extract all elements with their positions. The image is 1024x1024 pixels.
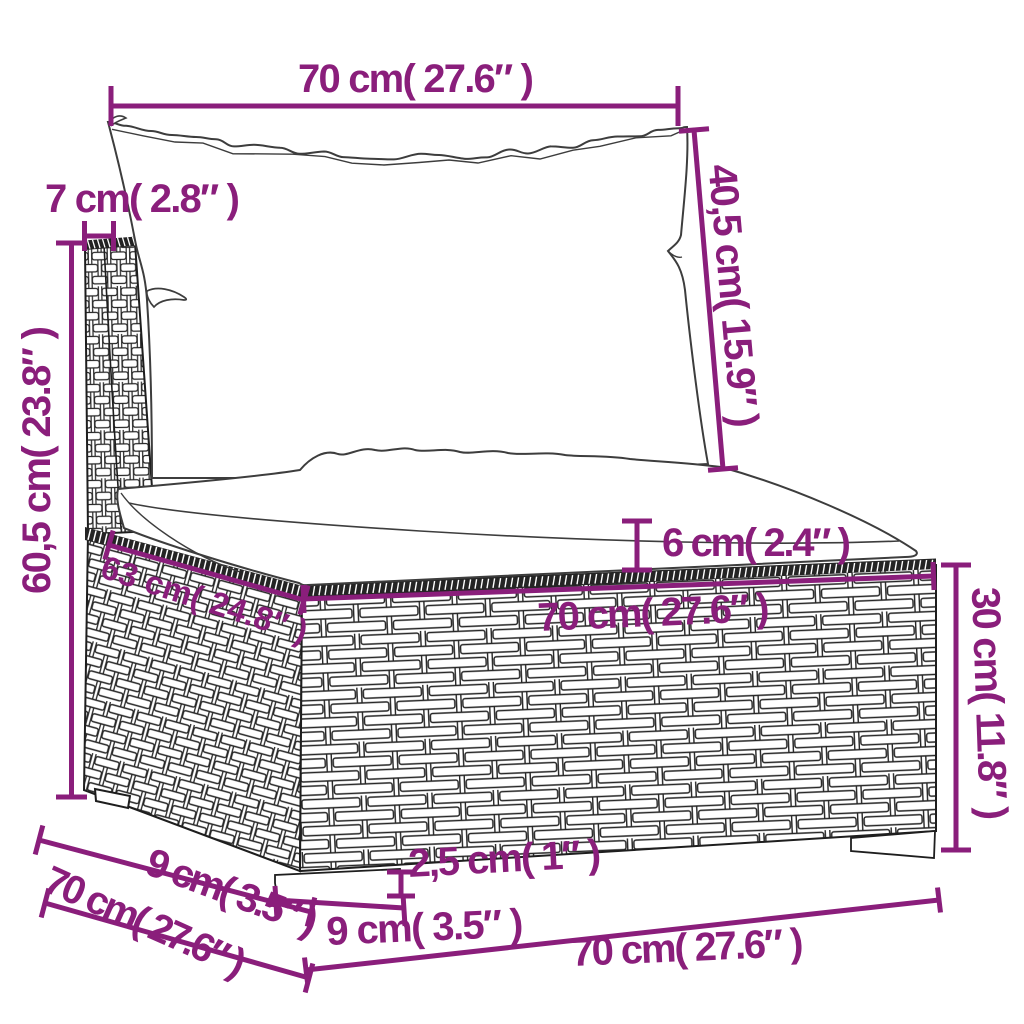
svg-text:30 cm( 11.8″ ): 30 cm( 11.8″ ) bbox=[963, 586, 1015, 820]
svg-text:6 cm( 2.4″ ): 6 cm( 2.4″ ) bbox=[662, 521, 851, 565]
svg-text:9 cm( 3.5″ ): 9 cm( 3.5″ ) bbox=[325, 901, 524, 954]
svg-text:60,5 cm( 23.8″ ): 60,5 cm( 23.8″ ) bbox=[15, 326, 59, 594]
svg-text:7 cm( 2.8″ ): 7 cm( 2.8″ ) bbox=[45, 177, 240, 221]
svg-text:70 cm( 27.6″ ): 70 cm( 27.6″ ) bbox=[298, 57, 534, 101]
